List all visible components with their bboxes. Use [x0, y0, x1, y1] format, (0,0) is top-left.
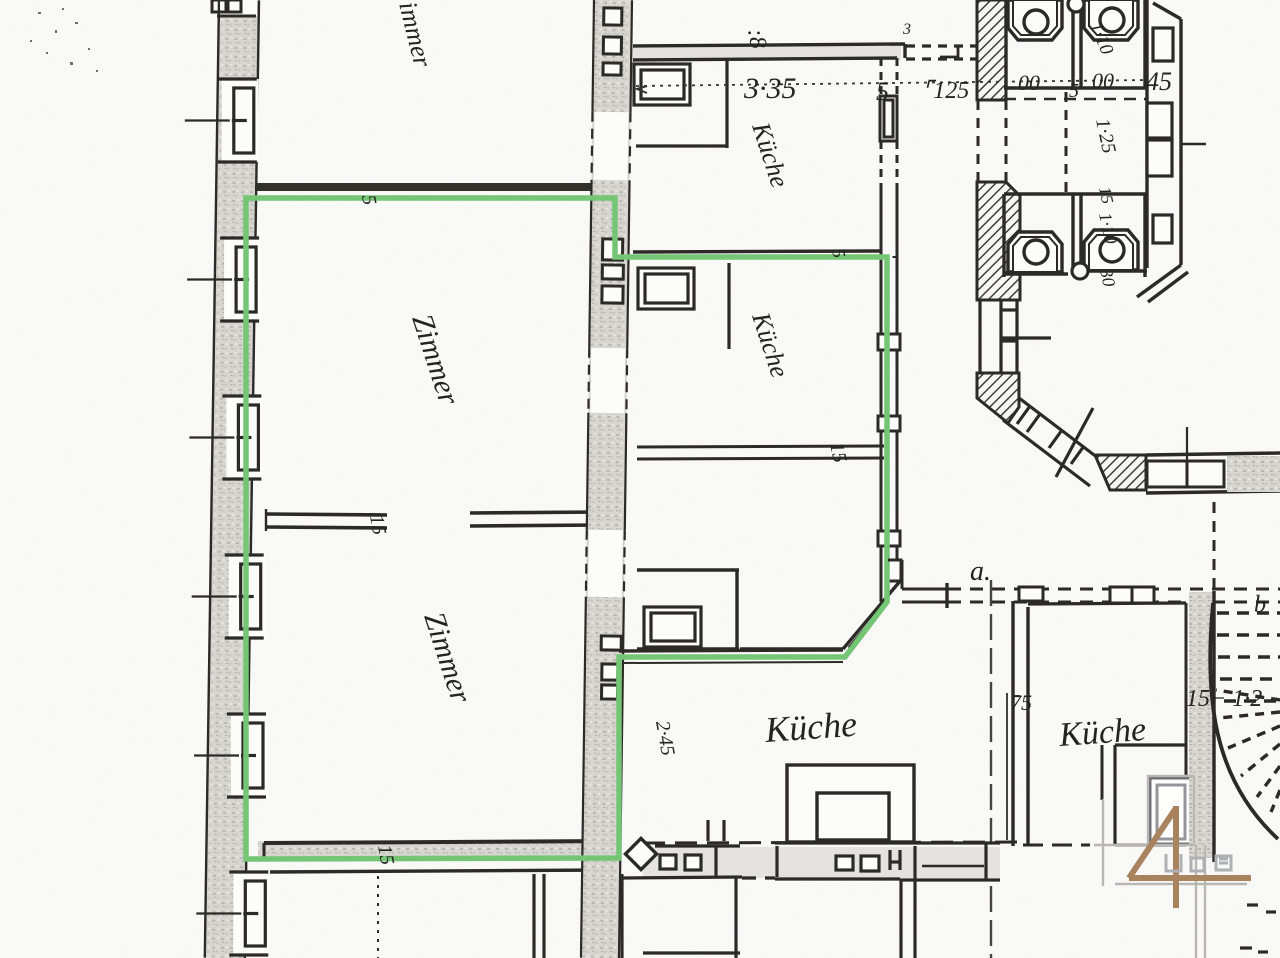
svg-text:45: 45 [1146, 67, 1172, 96]
svg-text:00: 00 [1092, 68, 1114, 93]
svg-text:3·35: 3·35 [743, 72, 797, 105]
svg-text:5: 5 [1069, 80, 1079, 102]
svg-text:5: 5 [876, 77, 889, 106]
svg-text:15⌐ 1·2: 15⌐ 1·2 [1186, 686, 1262, 712]
svg-text:b: b [1254, 592, 1266, 618]
svg-text:⌜125: ⌜125 [922, 78, 969, 104]
svg-text:3: 3 [902, 21, 911, 38]
svg-text:00: 00 [1018, 70, 1040, 95]
svg-text:Küche: Küche [1057, 711, 1147, 754]
svg-text:75: 75 [1010, 690, 1032, 715]
svg-text:Küche: Küche [763, 704, 859, 750]
svg-text:a.: a. [970, 556, 991, 587]
svg-text:15: 15 [373, 843, 398, 867]
svg-text:15: 15 [365, 513, 390, 537]
